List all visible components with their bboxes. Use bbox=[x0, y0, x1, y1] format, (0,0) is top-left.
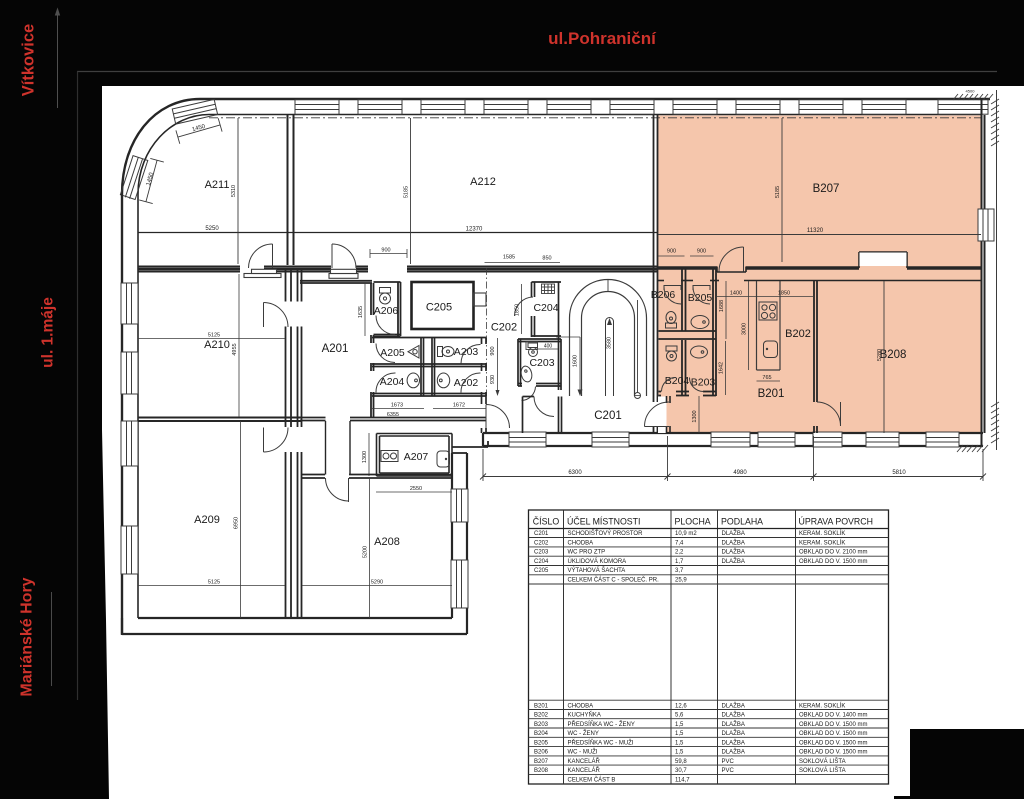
svg-text:6300: 6300 bbox=[568, 470, 582, 476]
svg-text:1585: 1585 bbox=[503, 255, 515, 261]
svg-text:1300: 1300 bbox=[692, 410, 698, 422]
svg-text:DLAŽBA: DLAŽBA bbox=[722, 538, 745, 546]
svg-text:OBKLAD DO V. 1500 mm: OBKLAD DO V. 1500 mm bbox=[799, 559, 867, 565]
svg-text:12,6: 12,6 bbox=[675, 703, 687, 709]
svg-text:5290: 5290 bbox=[371, 580, 383, 586]
svg-text:3000: 3000 bbox=[742, 323, 748, 335]
svg-text:CHODBA: CHODBA bbox=[568, 540, 594, 546]
svg-text:B204: B204 bbox=[534, 731, 549, 737]
svg-text:1400: 1400 bbox=[730, 291, 742, 297]
svg-text:DLAŽBA: DLAŽBA bbox=[722, 720, 745, 728]
svg-text:B207: B207 bbox=[813, 183, 840, 195]
svg-text:A210: A210 bbox=[204, 339, 230, 351]
svg-text:5250: 5250 bbox=[205, 226, 219, 232]
svg-text:5200: 5200 bbox=[363, 546, 369, 558]
svg-text:3,7: 3,7 bbox=[675, 568, 684, 574]
svg-text:KERAM. SOKLÍK: KERAM. SOKLÍK bbox=[799, 702, 845, 709]
svg-text:A208: A208 bbox=[374, 536, 400, 548]
svg-text:5125: 5125 bbox=[208, 333, 220, 339]
svg-text:5185: 5185 bbox=[404, 186, 410, 198]
svg-text:OBKLAD DO V. 1500 mm: OBKLAD DO V. 1500 mm bbox=[799, 722, 867, 728]
svg-text:114,7: 114,7 bbox=[675, 777, 690, 783]
svg-text:5810: 5810 bbox=[892, 470, 906, 476]
svg-text:SOKLOVÁ LIŠTA: SOKLOVÁ LIŠTA bbox=[799, 758, 846, 765]
svg-text:900: 900 bbox=[697, 249, 706, 255]
svg-text:1688: 1688 bbox=[719, 300, 725, 312]
svg-text:2,2: 2,2 bbox=[675, 550, 684, 556]
svg-text:5310: 5310 bbox=[231, 185, 237, 197]
svg-text:KANCELÁŘ: KANCELÁŘ bbox=[568, 757, 601, 765]
svg-text:11320: 11320 bbox=[807, 228, 824, 234]
svg-text:A204: A204 bbox=[380, 376, 405, 388]
svg-text:B205: B205 bbox=[534, 740, 549, 746]
svg-text:930: 930 bbox=[490, 375, 496, 384]
svg-text:CELKEM ČÁST C - SPOLEČ. PR.: CELKEM ČÁST C - SPOLEČ. PR. bbox=[568, 577, 660, 584]
svg-text:A205: A205 bbox=[380, 347, 405, 359]
svg-text:400: 400 bbox=[544, 344, 553, 350]
svg-text:DLAŽBA: DLAŽBA bbox=[722, 557, 745, 565]
svg-text:900: 900 bbox=[490, 346, 496, 355]
svg-text:SCHODIŠŤOVÝ PROSTOR: SCHODIŠŤOVÝ PROSTOR bbox=[568, 529, 644, 537]
svg-text:ÚPRAVA POVRCH: ÚPRAVA POVRCH bbox=[799, 517, 873, 527]
svg-text:PODLAHA: PODLAHA bbox=[721, 517, 763, 527]
svg-text:A209: A209 bbox=[194, 514, 220, 526]
svg-text:C204: C204 bbox=[533, 302, 558, 314]
svg-text:PŘEDSÍŇKA WC - ŽENY: PŘEDSÍŇKA WC - ŽENY bbox=[568, 720, 635, 728]
svg-text:OBKLAD DO V. 1500 mm: OBKLAD DO V. 1500 mm bbox=[799, 750, 867, 756]
svg-text:C202: C202 bbox=[491, 322, 517, 334]
svg-text:B201: B201 bbox=[758, 388, 785, 400]
svg-text:7,4: 7,4 bbox=[675, 540, 684, 546]
svg-text:2550: 2550 bbox=[410, 486, 422, 492]
svg-text:PŘEDSÍŇKA WC - MUŽI: PŘEDSÍŇKA WC - MUŽI bbox=[568, 738, 634, 746]
svg-text:ul. 1.máje: ul. 1.máje bbox=[40, 297, 57, 368]
svg-text:PLOCHA: PLOCHA bbox=[675, 517, 711, 527]
svg-text:850: 850 bbox=[542, 256, 551, 262]
svg-text:VÝTAHOVÁ ŠACHTA: VÝTAHOVÁ ŠACHTA bbox=[568, 567, 626, 574]
svg-text:WC - MUŽI: WC - MUŽI bbox=[568, 748, 598, 756]
svg-text:C202: C202 bbox=[534, 540, 549, 546]
svg-text:1635: 1635 bbox=[358, 306, 364, 318]
svg-text:C203: C203 bbox=[534, 550, 549, 556]
svg-text:CELKEM ČÁST B: CELKEM ČÁST B bbox=[568, 776, 616, 783]
svg-text:1850: 1850 bbox=[778, 291, 790, 297]
svg-text:C203: C203 bbox=[529, 357, 554, 369]
svg-text:DLAŽBA: DLAŽBA bbox=[722, 701, 745, 709]
svg-text:ÚČEL MÍSTNOSTI: ÚČEL MÍSTNOSTI bbox=[567, 517, 640, 527]
svg-text:KUCHYŇKA: KUCHYŇKA bbox=[568, 712, 601, 719]
svg-text:DLAŽBA: DLAŽBA bbox=[722, 729, 745, 737]
svg-text:A206: A206 bbox=[374, 305, 399, 317]
svg-text:5,6: 5,6 bbox=[675, 713, 684, 719]
svg-text:1,5: 1,5 bbox=[675, 750, 684, 756]
svg-text:5280: 5280 bbox=[877, 349, 883, 361]
svg-text:DLAŽBA: DLAŽBA bbox=[722, 529, 745, 537]
svg-text:DLAŽBA: DLAŽBA bbox=[722, 711, 745, 719]
svg-text:WC PRO ZTP: WC PRO ZTP bbox=[568, 550, 606, 556]
svg-text:1,5: 1,5 bbox=[675, 722, 684, 728]
svg-text:3580: 3580 bbox=[607, 337, 613, 349]
svg-text:WC - ŽENY: WC - ŽENY bbox=[568, 729, 599, 737]
svg-text:1672: 1672 bbox=[453, 403, 465, 409]
svg-text:5185: 5185 bbox=[775, 186, 781, 198]
svg-text:C201: C201 bbox=[534, 531, 549, 537]
svg-text:B206: B206 bbox=[651, 289, 676, 301]
svg-text:5125: 5125 bbox=[208, 580, 220, 586]
svg-text:C205: C205 bbox=[534, 568, 549, 574]
svg-text:C201: C201 bbox=[594, 410, 622, 422]
svg-text:DLAŽBA: DLAŽBA bbox=[722, 548, 745, 556]
svg-text:A207: A207 bbox=[404, 451, 429, 463]
svg-text:Vítkovice: Vítkovice bbox=[20, 24, 38, 96]
svg-text:1300: 1300 bbox=[362, 451, 368, 463]
svg-text:12370: 12370 bbox=[466, 227, 483, 233]
svg-text:1,7: 1,7 bbox=[675, 559, 684, 565]
svg-text:4980: 4980 bbox=[733, 470, 747, 476]
svg-text:25,9: 25,9 bbox=[675, 578, 687, 584]
svg-text:B202: B202 bbox=[785, 328, 811, 340]
svg-text:B208: B208 bbox=[534, 768, 549, 774]
svg-text:DLAŽBA: DLAŽBA bbox=[722, 748, 745, 756]
svg-text:B207: B207 bbox=[534, 759, 549, 765]
svg-text:900: 900 bbox=[381, 248, 390, 254]
svg-text:ÚKLIDOVÁ KOMORA: ÚKLIDOVÁ KOMORA bbox=[568, 558, 627, 565]
svg-text:1673: 1673 bbox=[391, 403, 403, 409]
svg-text:30,7: 30,7 bbox=[675, 768, 687, 774]
svg-text:1600: 1600 bbox=[573, 355, 579, 367]
svg-text:OBKLAD DO V. 2100 mm: OBKLAD DO V. 2100 mm bbox=[799, 550, 867, 556]
svg-text:B201: B201 bbox=[534, 703, 549, 709]
svg-text:10,9 m2: 10,9 m2 bbox=[675, 531, 697, 537]
svg-text:A211: A211 bbox=[205, 179, 230, 191]
svg-text:6950: 6950 bbox=[234, 517, 240, 529]
svg-text:1642: 1642 bbox=[719, 362, 725, 374]
svg-text:1850: 1850 bbox=[515, 304, 521, 316]
svg-text:B203: B203 bbox=[534, 722, 549, 728]
svg-text:1,5: 1,5 bbox=[675, 740, 684, 746]
svg-text:1,5: 1,5 bbox=[675, 731, 684, 737]
svg-text:DLAŽBA: DLAŽBA bbox=[722, 738, 745, 746]
svg-text:OBKLAD DO V. 1500 mm: OBKLAD DO V. 1500 mm bbox=[799, 740, 867, 746]
svg-text:Mariánské Hory: Mariánské Hory bbox=[19, 577, 36, 696]
svg-text:PVC: PVC bbox=[722, 759, 735, 765]
svg-text:OBKLAD DO V. 1500 mm: OBKLAD DO V. 1500 mm bbox=[799, 731, 867, 737]
svg-text:900: 900 bbox=[667, 249, 676, 255]
svg-text:C204: C204 bbox=[534, 559, 549, 565]
svg-text:SOKLOVÁ LIŠTA: SOKLOVÁ LIŠTA bbox=[799, 767, 846, 774]
svg-text:KANCELÁŘ: KANCELÁŘ bbox=[568, 766, 601, 774]
svg-text:765: 765 bbox=[762, 375, 771, 381]
svg-text:CHODBA: CHODBA bbox=[568, 703, 594, 709]
svg-text:PVC: PVC bbox=[722, 768, 735, 774]
svg-text:KERAM. SOKLÍK: KERAM. SOKLÍK bbox=[799, 530, 845, 537]
svg-text:B206: B206 bbox=[534, 750, 549, 756]
svg-text:6355: 6355 bbox=[387, 412, 399, 418]
svg-text:B204: B204 bbox=[665, 375, 690, 387]
svg-text:ČÍSLO: ČÍSLO bbox=[533, 517, 560, 527]
svg-text:OBKLAD DO V. 1400 mm: OBKLAD DO V. 1400 mm bbox=[799, 713, 867, 719]
svg-text:59,8: 59,8 bbox=[675, 759, 687, 765]
svg-text:B203: B203 bbox=[691, 377, 716, 389]
svg-text:A203: A203 bbox=[454, 346, 479, 358]
svg-text:B202: B202 bbox=[534, 713, 549, 719]
svg-text:4500: 4500 bbox=[966, 89, 976, 94]
svg-text:A212: A212 bbox=[470, 176, 496, 188]
svg-text:KERAM. SOKLÍK: KERAM. SOKLÍK bbox=[799, 539, 845, 546]
svg-text:C205: C205 bbox=[426, 302, 452, 314]
svg-text:A201: A201 bbox=[322, 343, 349, 355]
svg-text:ul.Pohraniční: ul.Pohraniční bbox=[548, 29, 657, 48]
svg-text:B205: B205 bbox=[688, 292, 713, 304]
svg-text:4955: 4955 bbox=[232, 343, 238, 355]
